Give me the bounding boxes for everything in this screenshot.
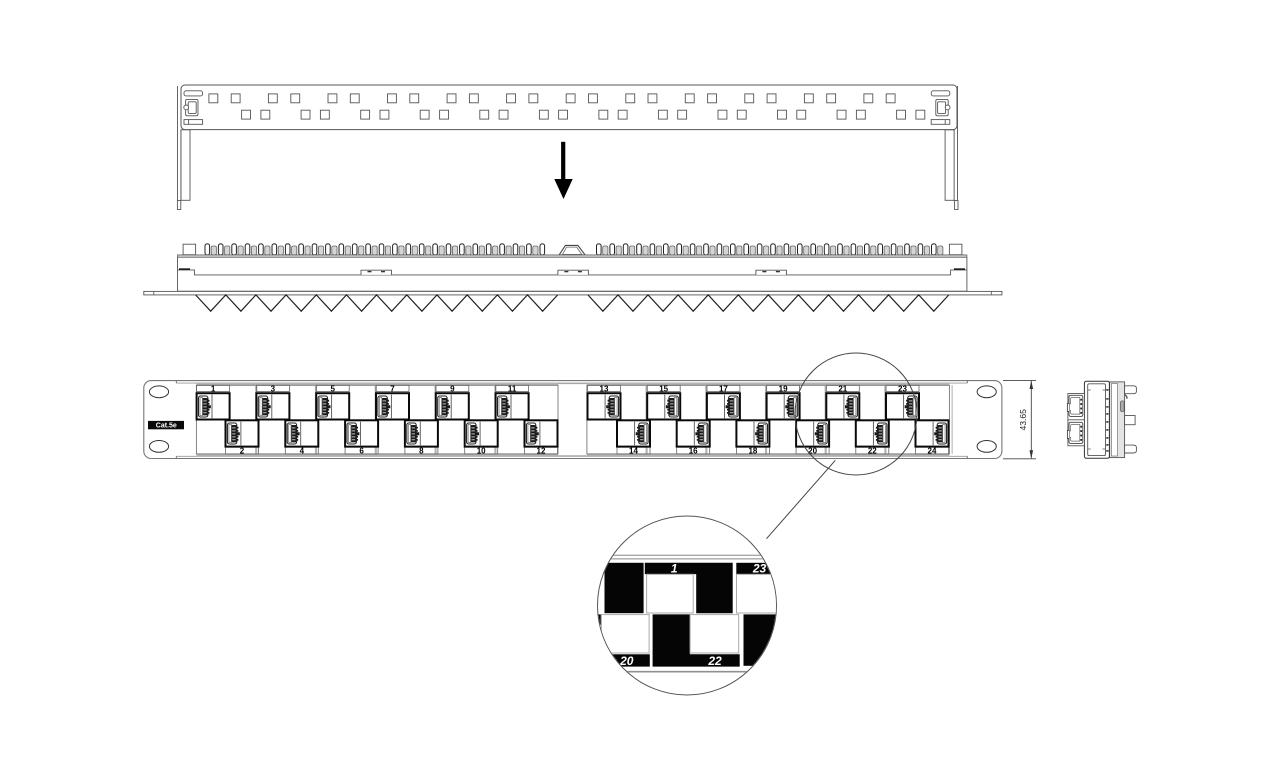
svg-text:7: 7	[390, 384, 395, 393]
svg-text:12: 12	[537, 446, 546, 455]
svg-text:23: 23	[752, 562, 767, 576]
svg-text:4: 4	[300, 446, 305, 455]
svg-text:6: 6	[359, 446, 364, 455]
svg-text:Cat.5e: Cat.5e	[156, 423, 177, 430]
svg-text:8: 8	[419, 446, 424, 455]
svg-text:23: 23	[898, 384, 907, 393]
svg-text:43.65: 43.65	[1018, 409, 1028, 431]
svg-text:18: 18	[748, 446, 757, 455]
svg-text:22: 22	[868, 446, 877, 455]
svg-text:2: 2	[240, 446, 245, 455]
svg-text:14: 14	[629, 446, 638, 455]
svg-text:15: 15	[659, 384, 668, 393]
svg-text:10: 10	[477, 446, 486, 455]
svg-text:5: 5	[330, 384, 335, 393]
svg-text:11: 11	[508, 384, 517, 393]
svg-text:1: 1	[671, 562, 678, 576]
svg-text:1: 1	[211, 384, 216, 393]
svg-text:16: 16	[689, 446, 698, 455]
svg-text:19: 19	[779, 384, 788, 393]
svg-text:9: 9	[450, 384, 455, 393]
svg-text:21: 21	[838, 384, 847, 393]
svg-text:3: 3	[271, 384, 276, 393]
svg-text:24: 24	[928, 446, 937, 455]
svg-text:17: 17	[719, 384, 728, 393]
svg-text:22: 22	[707, 654, 722, 668]
svg-text:13: 13	[600, 384, 609, 393]
